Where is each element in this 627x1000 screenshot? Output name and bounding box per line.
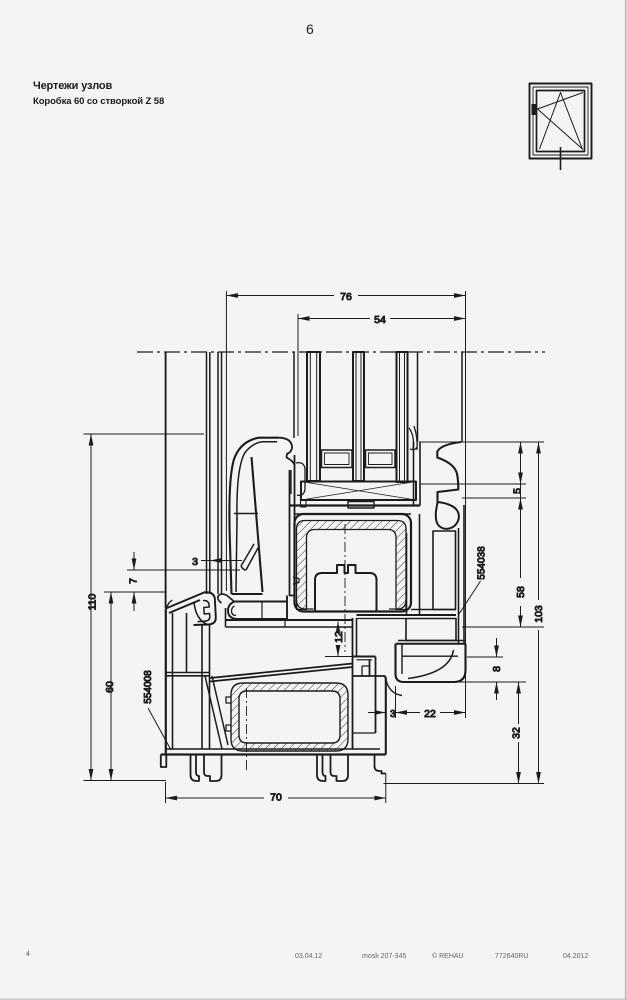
svg-text:60: 60 xyxy=(104,681,116,693)
svg-text:5: 5 xyxy=(512,488,524,494)
svg-text:70: 70 xyxy=(270,792,282,804)
svg-text:3: 3 xyxy=(192,556,198,568)
svg-text:110: 110 xyxy=(87,593,99,610)
svg-text:32: 32 xyxy=(511,727,523,739)
svg-text:103: 103 xyxy=(533,605,545,623)
svg-text:76: 76 xyxy=(340,291,352,303)
svg-text:58: 58 xyxy=(515,586,527,598)
svg-text:554008: 554008 xyxy=(143,670,154,704)
svg-text:3: 3 xyxy=(390,709,396,720)
svg-text:554038: 554038 xyxy=(477,546,488,580)
svg-text:22: 22 xyxy=(424,708,436,720)
svg-text:8: 8 xyxy=(491,666,503,672)
svg-text:7: 7 xyxy=(128,578,140,584)
svg-text:12: 12 xyxy=(333,631,345,643)
svg-text:54: 54 xyxy=(374,314,386,326)
